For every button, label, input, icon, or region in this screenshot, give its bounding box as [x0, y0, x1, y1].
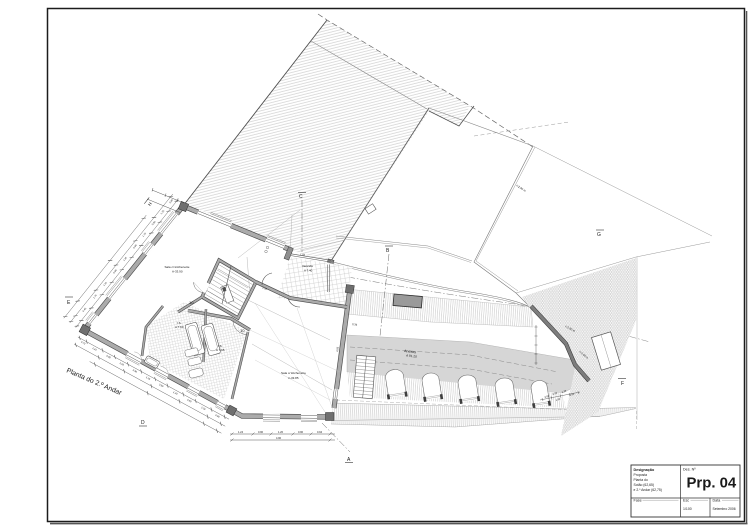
- svg-text:A 7.65: A 7.65: [216, 348, 225, 352]
- svg-text:1/100: 1/100: [683, 507, 692, 511]
- svg-text:Des. Nº: Des. Nº: [683, 468, 696, 472]
- svg-text:10: 10: [240, 328, 245, 333]
- svg-text:Varanda: Varanda: [302, 264, 313, 268]
- svg-text:0.94: 0.94: [317, 430, 323, 434]
- svg-text:Fase: Fase: [634, 499, 642, 503]
- svg-text:1.20: 1.20: [278, 430, 284, 434]
- svg-text:1.24: 1.24: [238, 430, 244, 434]
- svg-text:A 7.60: A 7.60: [175, 325, 184, 329]
- svg-text:Sotão (62,65): Sotão (62,65): [634, 483, 655, 487]
- svg-text:Data: Data: [713, 499, 722, 503]
- svg-text:0.90: 0.90: [258, 430, 264, 434]
- svg-text:F: F: [621, 381, 624, 387]
- svg-text:Esc: Esc: [683, 499, 689, 503]
- svg-text:10: 10: [189, 300, 194, 305]
- svg-text:0.90: 0.90: [298, 430, 304, 434]
- svg-text:A-33.90: A-33.90: [172, 270, 183, 274]
- svg-text:D: D: [141, 420, 145, 426]
- svg-text:Planta do: Planta do: [634, 478, 648, 482]
- svg-text:A 7.40: A 7.40: [304, 269, 313, 273]
- svg-text:Designação: Designação: [634, 468, 655, 472]
- svg-text:A-33.85: A-33.85: [288, 376, 299, 380]
- svg-text:e 2.º Andar (62,75): e 2.º Andar (62,75): [634, 488, 662, 492]
- svg-text:4.90: 4.90: [276, 436, 282, 440]
- svg-text:Sala c/ kitchenette: Sala c/ kitchenette: [165, 265, 190, 269]
- svg-text:Prp. 04: Prp. 04: [687, 475, 737, 491]
- svg-text:Setembro 2006: Setembro 2006: [713, 507, 736, 511]
- svg-text:C: C: [299, 194, 303, 200]
- svg-text:Proposta: Proposta: [634, 473, 648, 477]
- svg-text:G: G: [597, 232, 601, 238]
